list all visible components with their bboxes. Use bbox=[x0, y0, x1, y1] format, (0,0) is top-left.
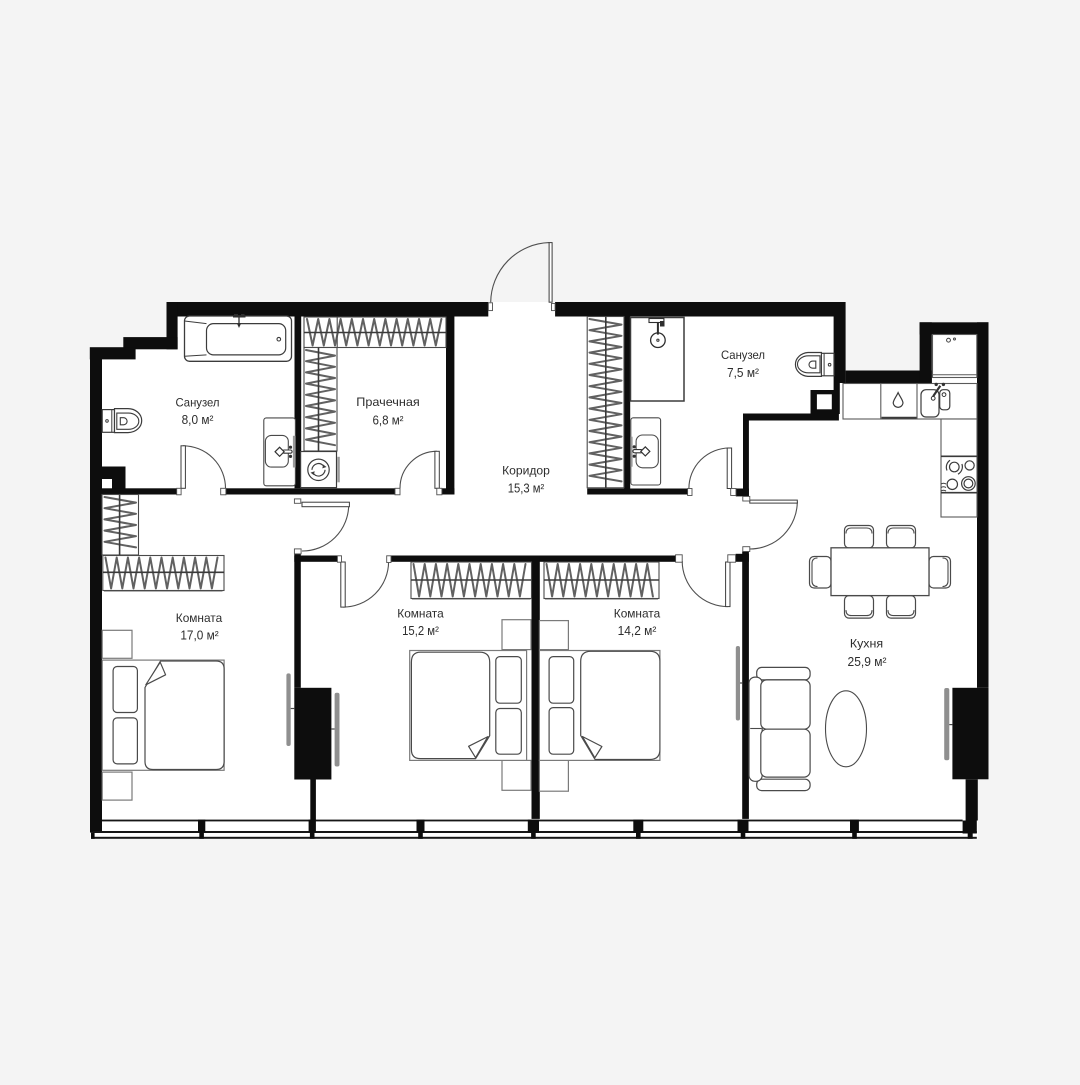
svg-text:Санузел: Санузел bbox=[176, 395, 220, 409]
svg-text:Коридор: Коридор bbox=[502, 463, 550, 477]
svg-text:Комната: Комната bbox=[397, 607, 444, 621]
svg-text:17,0 м²: 17,0 м² bbox=[180, 627, 219, 642]
svg-text:6,8 м²: 6,8 м² bbox=[372, 412, 404, 427]
svg-text:15,2 м²: 15,2 м² bbox=[402, 623, 439, 638]
svg-text:25,9 м²: 25,9 м² bbox=[848, 654, 887, 669]
svg-text:15,3 м²: 15,3 м² bbox=[508, 481, 545, 496]
svg-text:Комната: Комната bbox=[614, 607, 661, 621]
svg-text:Санузел: Санузел bbox=[721, 348, 765, 362]
svg-text:Кухня: Кухня bbox=[850, 637, 883, 651]
svg-text:Прачечная: Прачечная bbox=[356, 395, 420, 409]
svg-text:8,0 м²: 8,0 м² bbox=[182, 412, 214, 427]
svg-text:14,2 м²: 14,2 м² bbox=[618, 623, 657, 638]
svg-text:Комната: Комната bbox=[176, 611, 223, 625]
svg-text:7,5 м²: 7,5 м² bbox=[727, 365, 760, 380]
